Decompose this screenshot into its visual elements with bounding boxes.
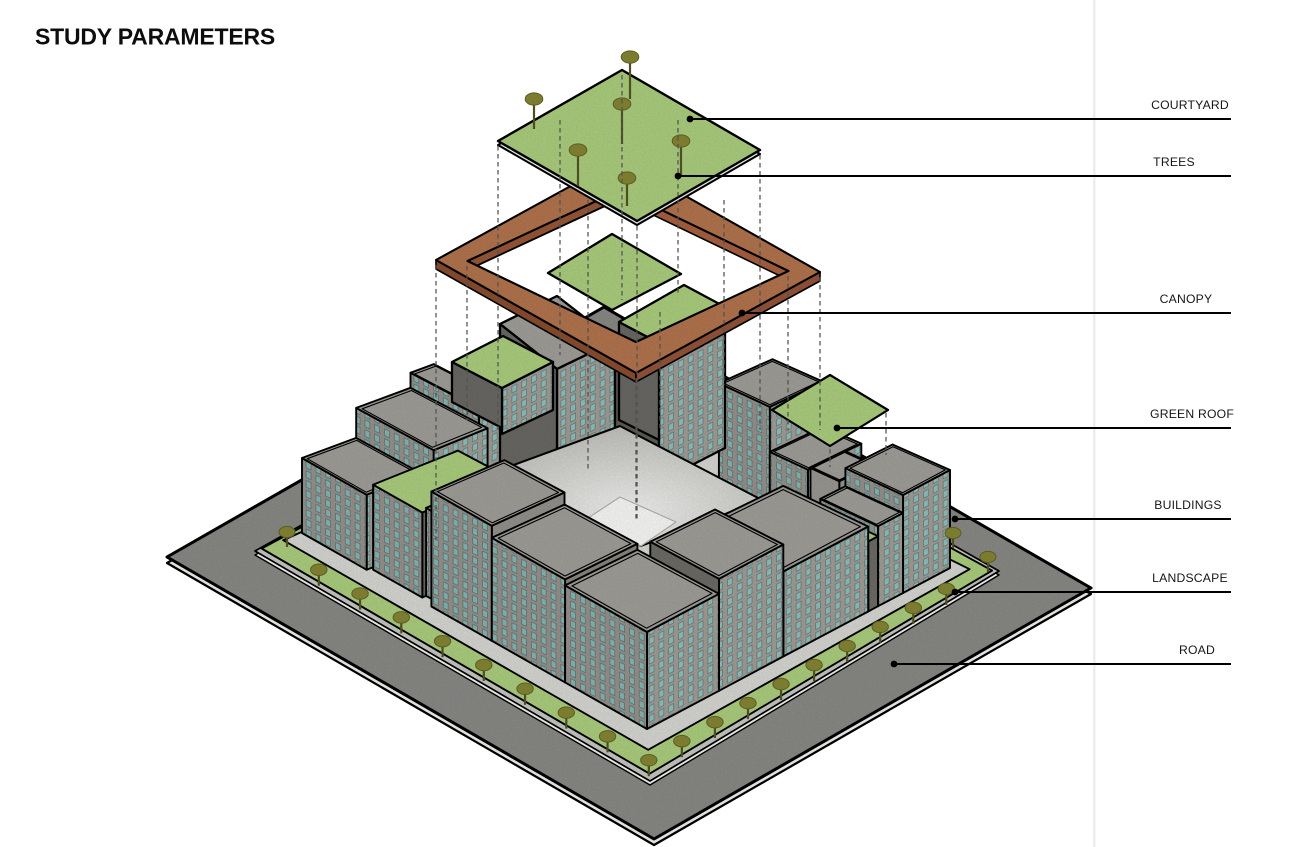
svg-text:CANOPY: CANOPY — [1160, 292, 1213, 306]
svg-text:ROAD: ROAD — [1179, 643, 1215, 657]
svg-text:STUDY PARAMETERS: STUDY PARAMETERS — [35, 24, 275, 50]
svg-text:GREEN ROOF: GREEN ROOF — [1150, 407, 1234, 421]
svg-text:LANDSCAPE: LANDSCAPE — [1152, 571, 1228, 585]
svg-text:COURTYARD: COURTYARD — [1151, 98, 1229, 112]
svg-text:BUILDINGS: BUILDINGS — [1154, 498, 1222, 512]
svg-text:TREES: TREES — [1153, 155, 1195, 169]
